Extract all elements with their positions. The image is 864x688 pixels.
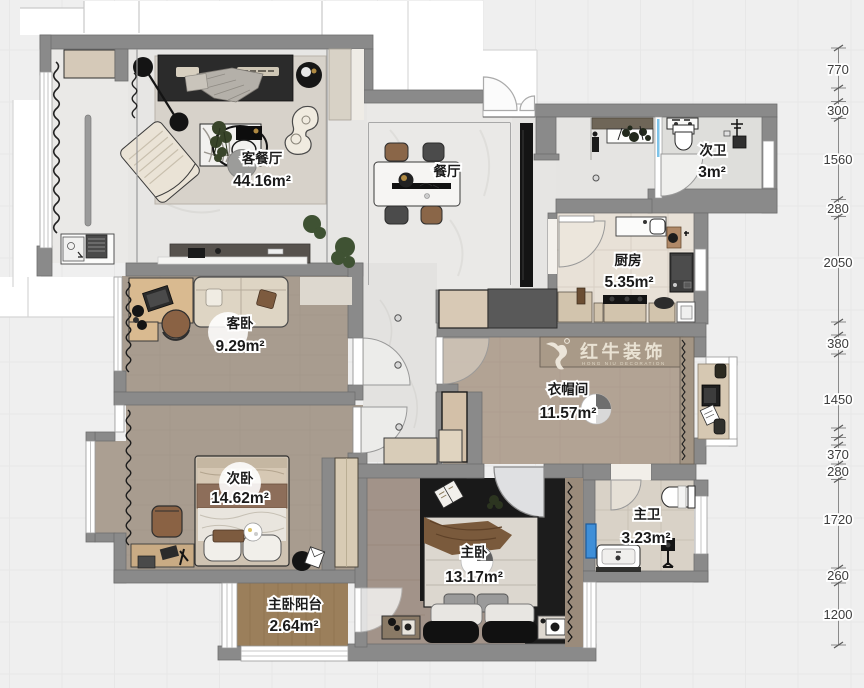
svg-text:280: 280 [827,464,849,479]
svg-text:主卧: 主卧 [461,544,488,560]
svg-text:11.57m²: 11.57m² [540,405,597,422]
svg-text:260: 260 [827,568,849,583]
svg-text:红牛装饰: 红牛装饰 [580,341,666,362]
svg-text:客餐厅: 客餐厅 [241,150,283,166]
svg-text:1560: 1560 [824,152,853,167]
svg-text:9.29m²: 9.29m² [215,338,264,355]
svg-text:厨房: 厨房 [615,252,642,268]
svg-text:1450: 1450 [824,392,853,407]
svg-text:2050: 2050 [824,255,853,270]
svg-text:客卧: 客卧 [226,315,254,331]
svg-text:衣帽间: 衣帽间 [548,381,589,397]
svg-text:次卫: 次卫 [700,142,728,158]
svg-text:770: 770 [827,62,849,77]
svg-text:2.64m²: 2.64m² [269,618,318,635]
svg-text:300: 300 [827,103,849,118]
svg-text:13.17m²: 13.17m² [445,569,503,586]
svg-text:370: 370 [827,447,849,462]
svg-text:主卧阳台: 主卧阳台 [268,596,322,612]
svg-text:餐厅: 餐厅 [433,163,461,179]
svg-text:280: 280 [827,201,849,216]
svg-text:14.62m²: 14.62m² [211,490,269,507]
svg-text:次卧: 次卧 [227,470,254,486]
svg-text:主卫: 主卫 [634,506,662,522]
svg-text:3m²: 3m² [698,164,726,181]
svg-text:5.35m²: 5.35m² [604,274,653,291]
svg-text:1720: 1720 [824,512,853,527]
svg-text:3.23m²: 3.23m² [621,530,670,547]
svg-text:380: 380 [827,336,849,351]
svg-text:1200: 1200 [824,607,853,622]
svg-text:HONG NIU DECORATION: HONG NIU DECORATION [582,361,666,366]
svg-text:44.16m²: 44.16m² [233,173,291,190]
